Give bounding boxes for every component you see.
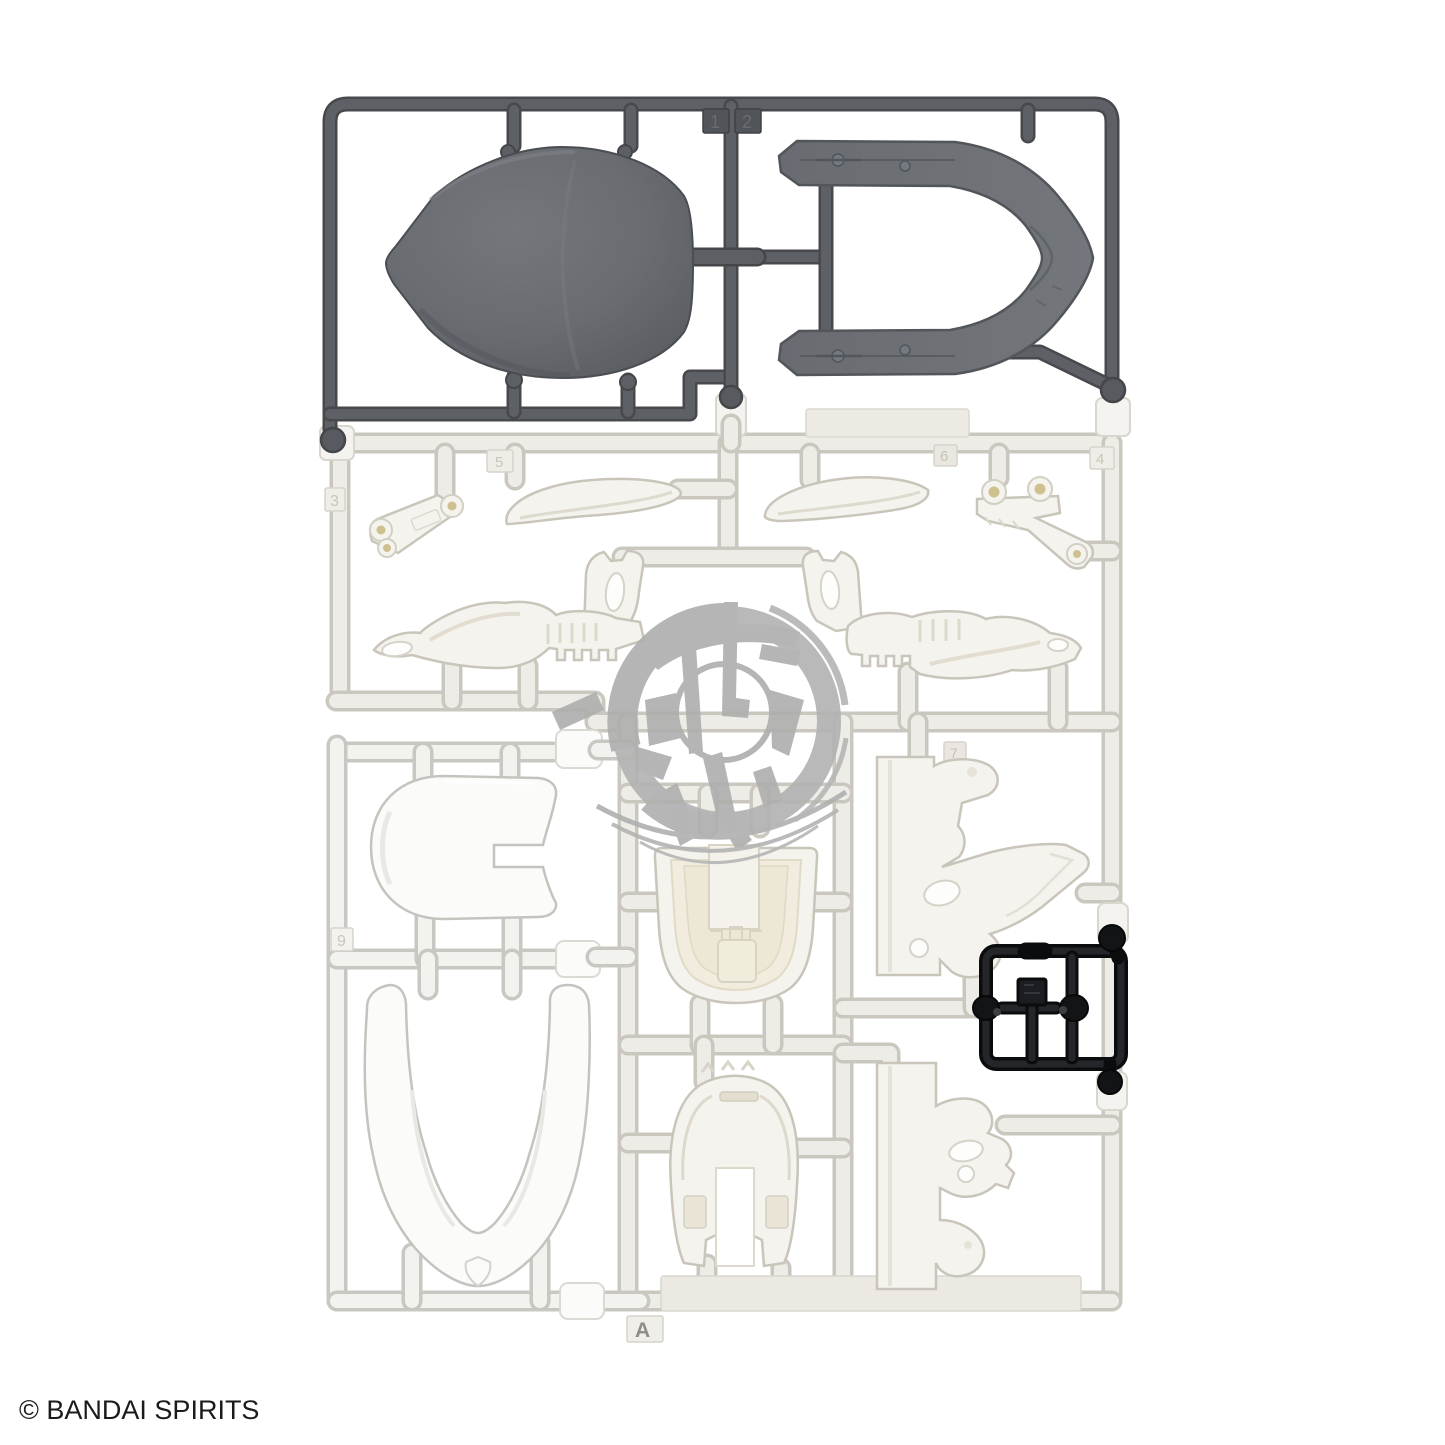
svg-text:4: 4 — [1096, 451, 1104, 468]
svg-text:9: 9 — [337, 933, 346, 950]
svg-text:6: 6 — [940, 448, 948, 465]
svg-text:© BANDAI SPIRITS: © BANDAI SPIRITS — [19, 1395, 259, 1425]
svg-text:3: 3 — [330, 493, 339, 510]
svg-text:2: 2 — [742, 112, 752, 132]
svg-text:1: 1 — [710, 112, 720, 132]
svg-text:A: A — [635, 1319, 650, 1342]
svg-text:5: 5 — [495, 454, 503, 471]
